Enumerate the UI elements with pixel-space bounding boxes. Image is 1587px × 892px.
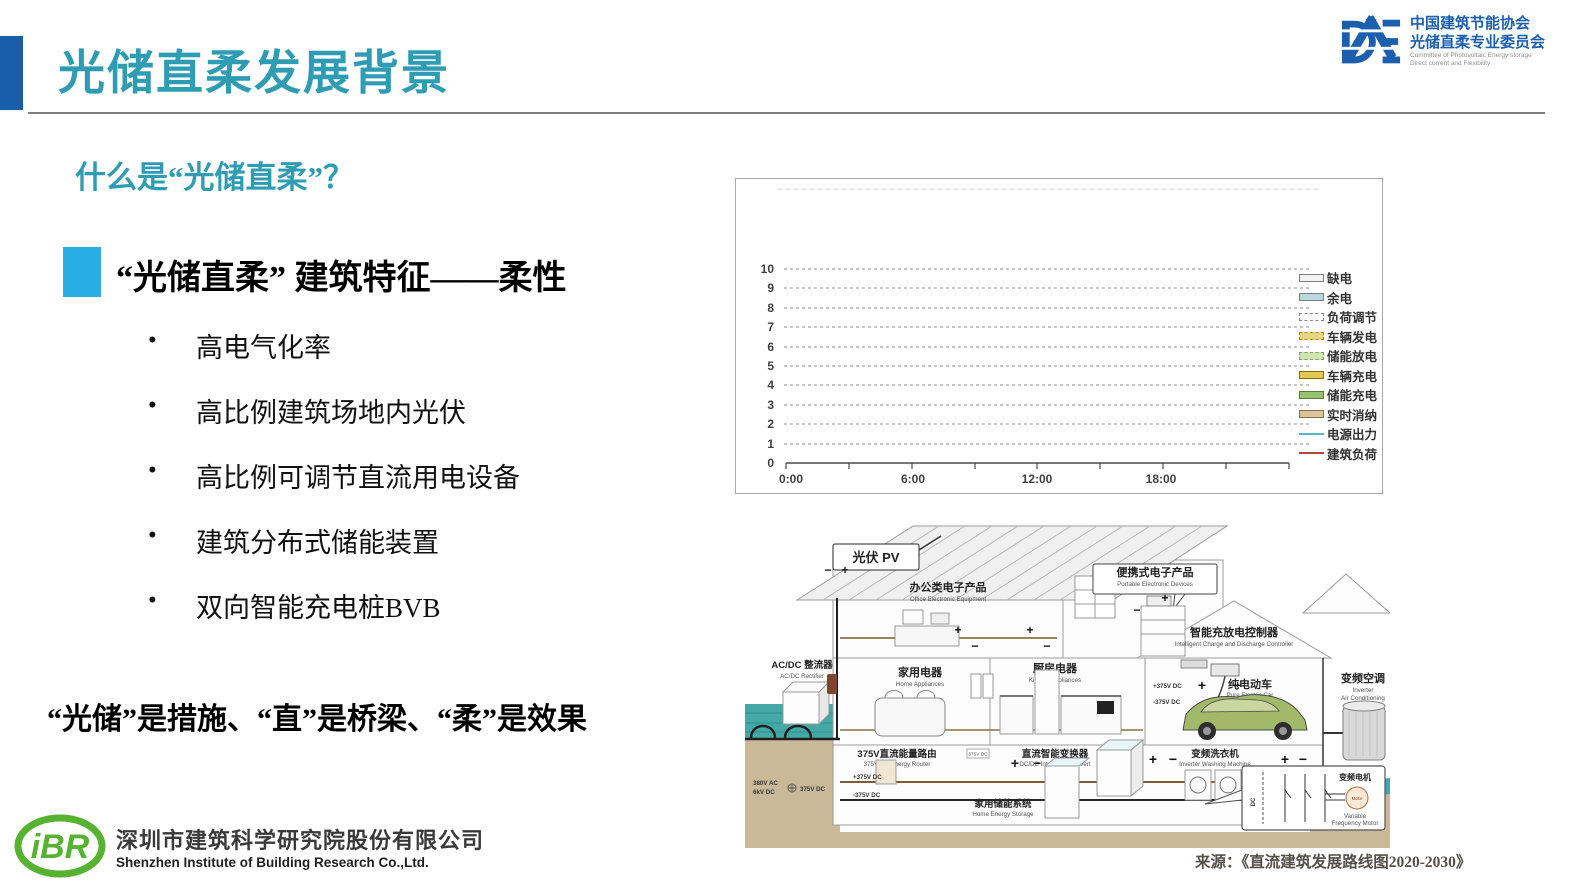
flexibility-chart: 10 9 8 7 6 5 4 3 2 1 0 0:00 6:00 12:00 1… [735,178,1383,494]
rectifier-label-en: AC/DC Rectifier [780,673,824,680]
committee-logo-icon [1340,14,1402,70]
list-item: 高比例可调节直流用电设备 [148,456,520,495]
x-tick: 18:00 [1146,472,1177,486]
office-label-en: Office Electronic Equipment [910,596,987,603]
kitchen-cabinet [1000,696,1033,734]
router-label-cn: 375V直流能量路由 [857,748,936,760]
legend-item: 车辆充电 [1299,369,1377,382]
svg-text:+: + [1161,591,1168,605]
pv-label: 光伏 PV [852,550,900,565]
svg-text:375V DC: 375V DC [968,752,988,758]
legend-item: 车辆发电 [1299,330,1377,343]
svg-text:−: − [971,639,978,653]
summary-statement: “光储”是措施、“直”是桥梁、“柔”是效果 [47,694,587,738]
question-heading: 什么是“光储直柔”？ [75,152,354,197]
svg-text:+: + [1281,751,1289,767]
ibr-logo-block: iBR 深圳市建筑科学研究院股份有限公司 Shenzhen Institute … [14,814,484,878]
cyan-square-bullet [63,247,101,297]
rectifier-label-cn: AC/DC 整流器 [771,659,833,671]
oven [1097,701,1114,714]
title-divider [28,112,1545,114]
router-label-en: 375V DC Energy Router [864,761,931,768]
y-tick: 8 [767,301,774,315]
svg-text:−: − [1133,603,1140,617]
svg-text:Frequency Motor: Frequency Motor [1332,820,1379,827]
controller-label-en: Intelligent Charge and Discharge Control… [1175,641,1294,648]
legend-swatch-storage-charge [1299,391,1324,399]
svg-text:−: − [1169,751,1177,767]
legend-swatch-vehicle-charge [1299,371,1324,379]
svg-text:+375V DC: +375V DC [1153,683,1182,690]
x-tick: 6:00 [901,472,925,486]
washer-label-cn: 变频洗衣机 [1191,748,1239,760]
legend-item: 储能放电 [1299,349,1377,362]
legend-swatch-realtime [1299,410,1324,418]
chart-plot-area: 10 9 8 7 6 5 4 3 2 1 0 0:00 6:00 12:00 1… [736,179,1380,491]
home-appliances-label-cn: 家用电器 [898,665,943,679]
feature-bullet-list: 高电气化率 高比例建筑场地内光伏 高比例可调节直流用电设备 建筑分布式储能装置 … [148,326,520,651]
list-item: 高电气化率 [148,326,520,365]
legend-swatch-deficit [1299,274,1324,282]
socket-tag [983,674,993,698]
y-tick: 5 [767,359,774,373]
hvac-label-cn: 变频空调 [1341,671,1385,685]
svg-text:+: + [954,623,961,637]
legend-item: 建筑负荷 [1299,447,1377,460]
y-tick: 7 [767,320,774,334]
y-tick: 6 [767,340,774,354]
legend-swatch-load-adjust [1299,313,1324,321]
svg-text:DC: DC [1251,797,1257,806]
svg-text:Motor: Motor [1352,796,1363,801]
y-tick: 9 [767,281,774,295]
legend-item: 负荷调节 [1299,310,1377,323]
svg-text:−: − [1299,751,1307,767]
svg-text:+: + [1026,623,1033,637]
y-tick: 3 [767,398,774,412]
legend-item: 储能充电 [1299,388,1377,401]
svg-text:+: + [1149,751,1157,767]
legend-item: 电源出力 [1299,427,1377,440]
y-tick: 0 [767,456,774,470]
office-desk [895,626,959,646]
company-name-cn: 深圳市建筑科学研究院股份有限公司 [116,823,484,855]
device-shelf [1141,606,1185,656]
svg-text:-375V DC: -375V DC [853,792,881,799]
portable-label-en: Portable Electronic Devices [1117,581,1193,588]
y-tick: 4 [767,378,774,392]
legend-swatch-building-load [1299,452,1324,454]
legend-swatch-storage-discharge [1299,352,1324,360]
white-cabinet [1097,750,1131,796]
source-citation: 来源：《直流建筑发展路线图2020-2030》 [1195,850,1471,872]
svg-text:380V AC: 380V AC [753,780,778,787]
page-title: 光储直柔发展背景 [58,34,450,103]
list-item: 双向智能充电桩BVB [148,586,520,625]
washer-label-en: Inverter Washing Machine [1179,761,1251,768]
svg-text:6kV DC: 6kV DC [753,789,775,796]
title-accent-bar [0,36,23,110]
svg-text:Variable: Variable [1344,813,1367,820]
committee-name-en-2: Direct current and Flexibility [1410,60,1545,68]
legend-swatch-power-output [1299,433,1324,435]
fridge [1035,670,1059,734]
svg-text:−: − [1043,639,1050,653]
committee-logo: 中国建筑节能协会 光储直柔专业委员会 Committee of Photovol… [1340,14,1545,70]
legend-swatch-vehicle-gen [1299,332,1324,340]
svg-text:Inverter: Inverter [1353,687,1374,694]
ibr-logo-text: iBR [31,828,90,866]
washing-machine [1185,770,1211,800]
committee-name-cn-1: 中国建筑节能协会 [1410,15,1545,33]
home-appliance [875,698,945,736]
svg-text:-375V DC: -375V DC [1153,699,1181,706]
y-tick: 1 [767,437,774,451]
motor-label-cn: 变频电机 [1339,772,1371,782]
x-tick: 12:00 [1022,472,1053,486]
storage-label-cn: 家用储能系统 [974,798,1032,810]
company-name-en: Shenzhen Institute of Building Research … [116,855,484,870]
portable-label-cn: 便携式电子产品 [1117,565,1194,579]
svg-text:375V DC: 375V DC [800,786,826,793]
feature-heading: “光储直柔” 建筑特征——柔性 [116,250,567,299]
right-gable [1303,574,1390,613]
socket-tag [971,674,981,698]
committee-name-cn-2: 光储直柔专业委员会 [1410,34,1545,52]
legend-item: 实时消纳 [1299,408,1377,421]
svg-text:+: + [841,563,848,577]
y-tick: 2 [767,417,774,431]
controller-label-cn: 智能充放电控制器 [1190,625,1279,639]
chart-legend: 缺电 余电 负荷调节 车辆发电 储能放电 车辆充电 储能充电 实时消纳 电源出力… [1299,271,1377,460]
dc-building-diagram: 光伏 PV 办公类电子产品 Office Electronic Equipmen… [745,498,1390,848]
charge-controller-unit [1211,664,1239,676]
storage-label-en: Home Energy Storage [972,811,1034,818]
legend-item: 余电 [1299,291,1377,304]
svg-text:+: + [1198,677,1206,693]
wall-connector [827,674,837,694]
home-energy-storage-unit [1045,766,1079,818]
list-item: 建筑分布式储能装置 [148,521,520,560]
office-label-cn: 办公类电子产品 [910,580,987,594]
ground-strip [745,832,1390,848]
legend-swatch-surplus [1299,293,1324,301]
svg-text:+: + [1011,755,1019,771]
legend-item: 缺电 [1299,271,1377,284]
y-tick: 10 [761,262,775,276]
home-appliances-label-en: Home Appliances [896,681,944,688]
x-tick: 0:00 [779,472,803,486]
svg-text:−: − [1233,677,1241,693]
rectifier-unit [783,692,819,724]
list-item: 高比例建筑场地内光伏 [148,391,520,430]
committee-name-en-1: Committee of Photovoltaic Energy storage [1410,52,1545,60]
ibr-logo-icon: iBR [14,814,106,878]
svg-text:−: − [824,563,831,577]
svg-text:+375V DC: +375V DC [853,774,882,781]
